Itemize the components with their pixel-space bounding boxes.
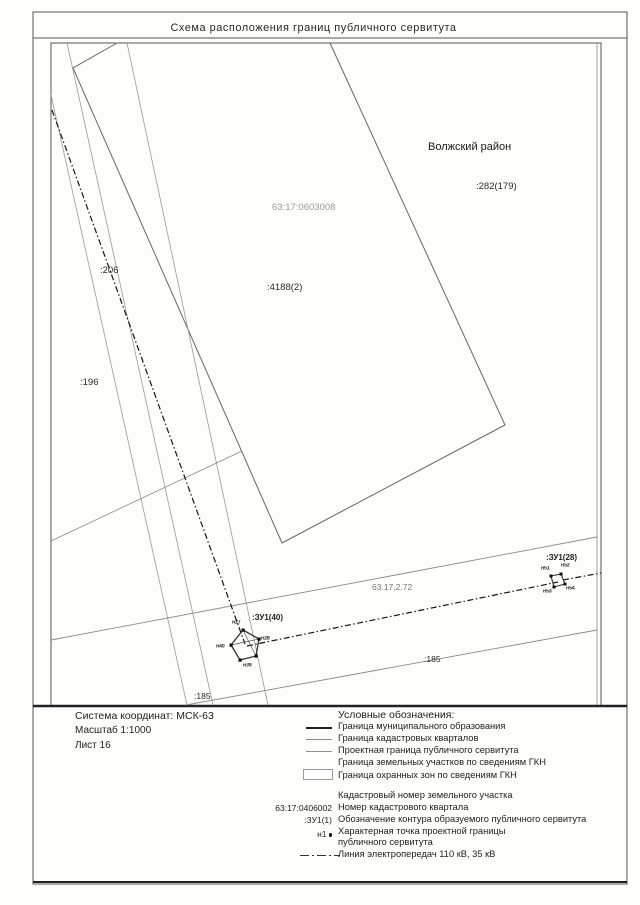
map-frame <box>51 43 601 706</box>
point-label: н27 <box>232 620 241 625</box>
power-line-segment-3 <box>563 573 601 580</box>
quarter-number-symbol: 63:17:0406002 <box>270 803 332 813</box>
quarter-0603008-boundary <box>73 43 505 543</box>
servitude-boundary-swatch <box>306 751 332 752</box>
quarter-number-label: 63:17:0603008 <box>272 202 335 213</box>
legend-item-label: Граница охранных зон по сведениям ГКН <box>338 770 517 780</box>
contour-symbol: :ЗУ1(1) <box>270 815 332 825</box>
contour-40-label: :ЗУ1(40) <box>252 613 283 622</box>
parcel-206-label: :206 <box>100 265 119 276</box>
parcel-strip-line-2 <box>67 43 213 705</box>
scheme-page: Схема расположения границ публичного сер… <box>0 0 640 905</box>
point-symbol-text: н1 <box>317 829 326 839</box>
servitude-contour-40 <box>230 629 261 662</box>
parcel-strip-line-3 <box>127 43 268 705</box>
parcel-4188-label: :4188(2) <box>267 282 302 293</box>
sheet-number: Лист 16 <box>75 740 111 751</box>
map-scale: Масштаб 1:1000 <box>75 725 151 736</box>
protection-zone-label: 63.17.2.72 <box>372 582 412 592</box>
parcel-185-left-label: :185 <box>194 691 211 701</box>
point-label: н53 <box>543 589 552 594</box>
cross-boundary-line <box>51 451 242 541</box>
legend-header: Условные обозначения: <box>338 709 454 721</box>
power-line-swatch <box>300 855 340 856</box>
municipal-boundary-swatch <box>306 727 332 729</box>
legend-item-label: Номер кадастрового квартала <box>338 802 468 812</box>
point-symbol: н1 <box>270 829 332 839</box>
legend-item-label: Граница кадастровых кварталов <box>338 733 478 743</box>
point-label: н52 <box>561 563 570 568</box>
point-label: н28 <box>261 636 270 641</box>
district-label: Волжский район <box>428 141 511 153</box>
legend-item-label: Граница земельных участков по сведениям … <box>338 757 546 767</box>
parcel-strip-line-1 <box>51 95 187 705</box>
legend-item-label: Граница муниципального образования <box>338 721 505 731</box>
coordinate-system: Система координат: МСК-63 <box>75 710 214 722</box>
point-dot-icon <box>329 833 333 837</box>
legend-item-label: Обозначение контура образуемого публично… <box>338 814 586 824</box>
point-label: н54 <box>566 586 575 591</box>
point-label: н40 <box>216 644 225 649</box>
point-label: н39 <box>243 663 252 668</box>
legend-item-label: Кадастровый номер земельного участка <box>338 790 513 800</box>
contour-28-label: :ЗУ1(28) <box>546 553 577 562</box>
parcel-196-label: :196 <box>80 377 99 388</box>
protection-zone-swatch <box>303 769 333 780</box>
point-label: н51 <box>541 566 550 571</box>
legend-item-label: Проектная граница публичного сервитута <box>338 745 519 755</box>
legend-item-label: Линия электропередач 110 кВ, 35 кВ <box>338 849 495 859</box>
servitude-contour-28 <box>550 573 567 589</box>
parcel-282-label: :282(179) <box>476 181 517 192</box>
protection-zone-top-edge <box>51 537 597 640</box>
page-title: Схема расположения границ публичного сер… <box>0 22 627 34</box>
quarter-boundary-swatch <box>306 739 332 740</box>
legend-item-label: Характерная точка проектной границы публ… <box>338 826 543 848</box>
page-border <box>33 12 627 884</box>
parcel-185-right-label: :185 <box>424 654 441 664</box>
